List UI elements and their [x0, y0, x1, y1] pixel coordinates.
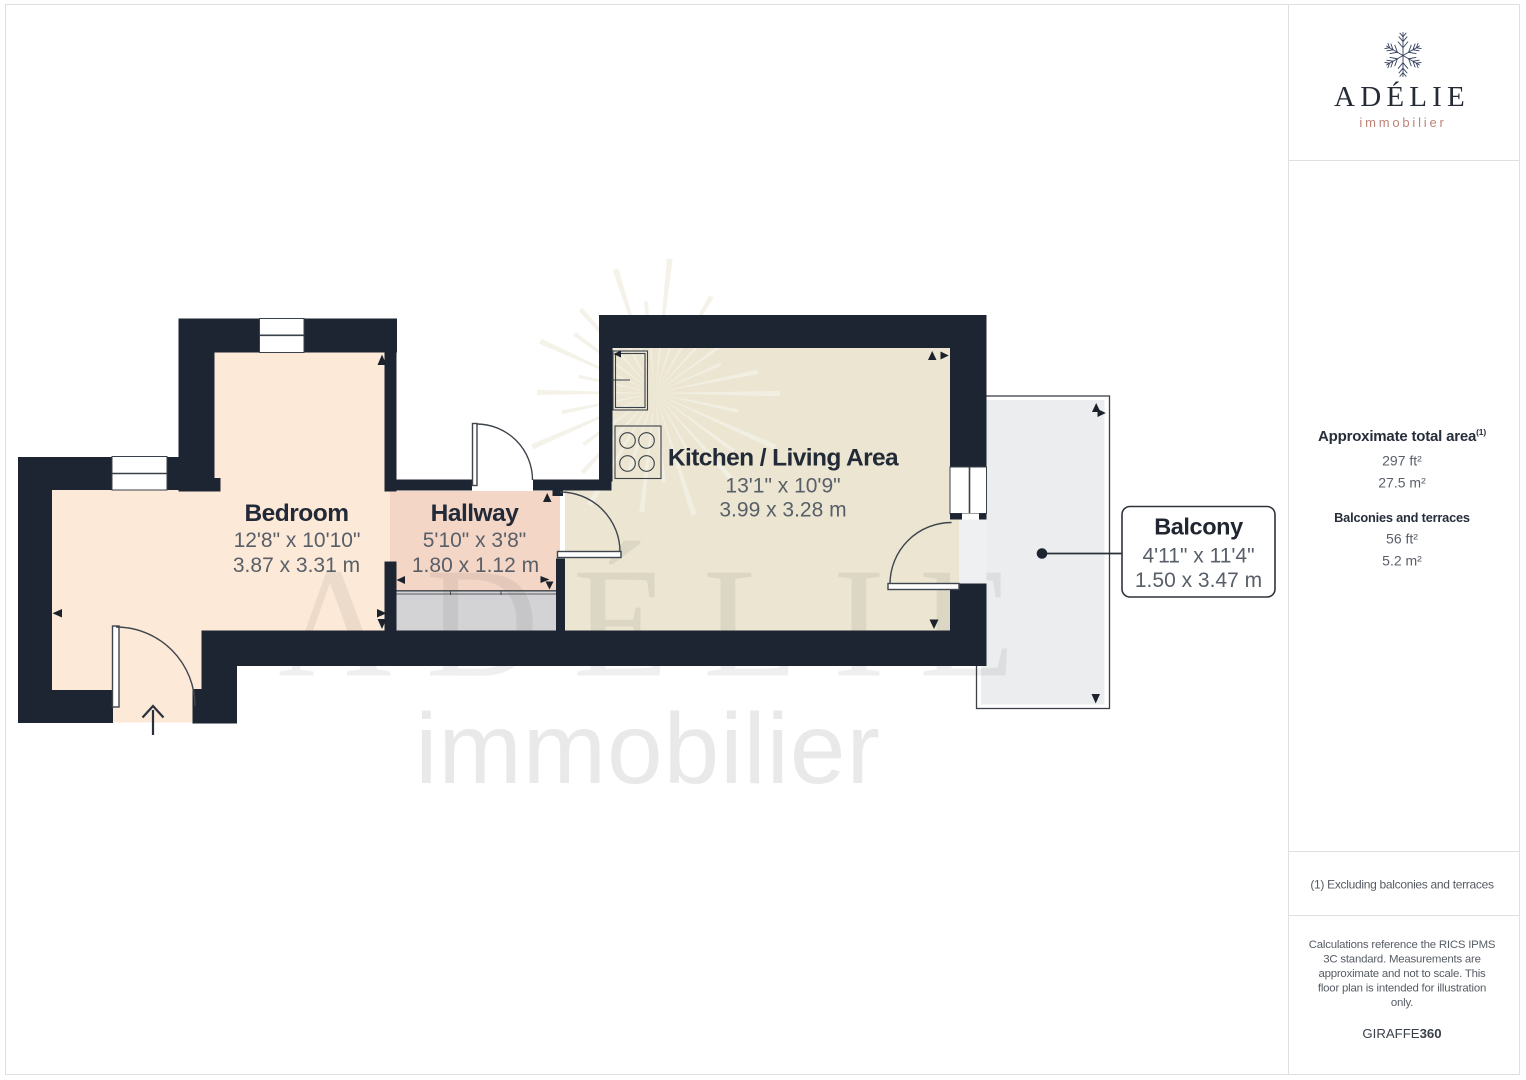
- svg-text:Balconies and terraces: Balconies and terraces: [1334, 510, 1470, 525]
- svg-text:27.5 m²: 27.5 m²: [1378, 475, 1426, 491]
- svg-text:GIRAFFE360: GIRAFFE360: [1362, 1026, 1441, 1041]
- svg-text:3.99 x 3.28 m: 3.99 x 3.28 m: [719, 499, 846, 522]
- svg-text:Approximate total area(1): Approximate total area(1): [1318, 427, 1486, 445]
- svg-text:floor plan is intended for ill: floor plan is intended for illustration: [1318, 983, 1486, 995]
- svg-text:(1) Excluding balconies and te: (1) Excluding balconies and terraces: [1310, 878, 1494, 892]
- svg-text:Balcony: Balcony: [1154, 514, 1243, 540]
- svg-text:only.: only.: [1391, 997, 1413, 1009]
- svg-text:297 ft²: 297 ft²: [1382, 453, 1422, 469]
- svg-text:Calculations reference the RIC: Calculations reference the RICS IPMS: [1309, 939, 1496, 951]
- svg-text:immobilier: immobilier: [415, 693, 881, 805]
- svg-text:1.50 x 3.47 m: 1.50 x 3.47 m: [1135, 569, 1262, 592]
- svg-text:4'11" x 11'4": 4'11" x 11'4": [1142, 545, 1254, 568]
- svg-text:1.80 x 1.12 m: 1.80 x 1.12 m: [412, 554, 539, 577]
- svg-text:12'8" x 10'10": 12'8" x 10'10": [234, 529, 361, 552]
- svg-text:5.2 m²: 5.2 m²: [1382, 553, 1422, 569]
- svg-text:immobilier: immobilier: [1359, 115, 1446, 130]
- svg-text:3.87 x 3.31 m: 3.87 x 3.31 m: [233, 554, 360, 577]
- svg-text:ADÉLIE: ADÉLIE: [1334, 80, 1470, 113]
- svg-text:56 ft²: 56 ft²: [1386, 531, 1418, 547]
- svg-text:Kitchen / Living Area: Kitchen / Living Area: [668, 445, 899, 472]
- svg-text:approximate and not to scale.: approximate and not to scale. This: [1318, 968, 1486, 980]
- svg-text:5'10" x 3'8": 5'10" x 3'8": [423, 529, 527, 552]
- svg-text:3C standard. Measurements are: 3C standard. Measurements are: [1323, 954, 1481, 966]
- svg-text:Bedroom: Bedroom: [244, 500, 348, 527]
- svg-text:Hallway: Hallway: [431, 500, 520, 527]
- svg-text:13'1" x 10'9": 13'1" x 10'9": [725, 475, 840, 498]
